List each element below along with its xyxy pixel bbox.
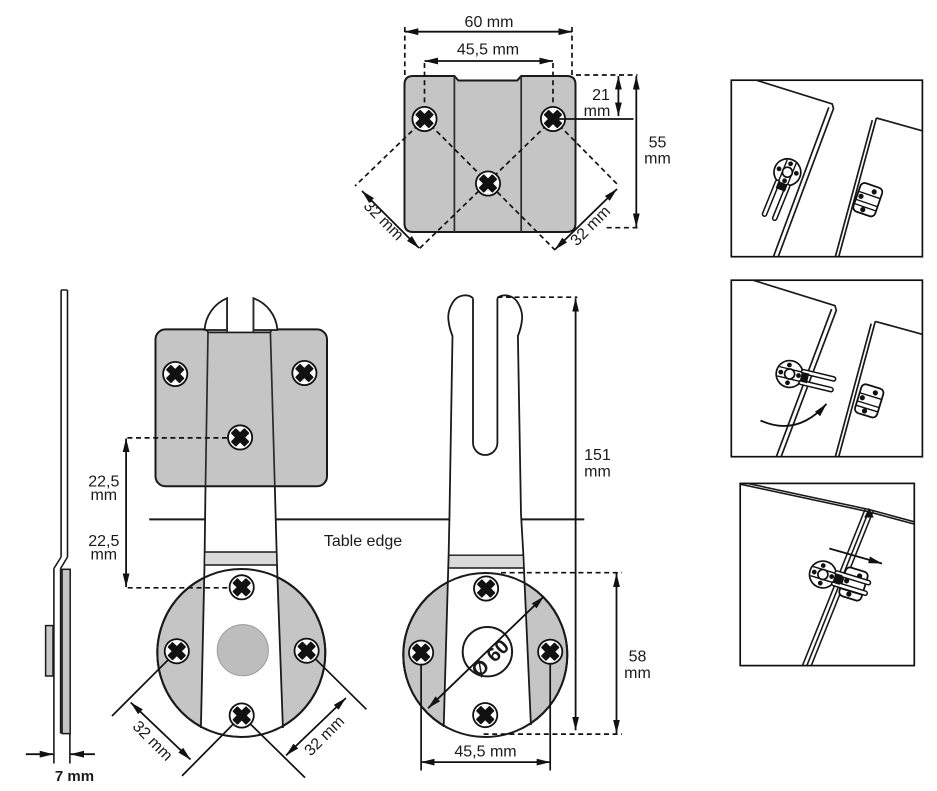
svg-text:151: 151 (584, 447, 611, 464)
svg-text:mm: mm (644, 151, 671, 168)
svg-text:45,5 mm: 45,5 mm (457, 42, 519, 59)
svg-text:32 mm: 32 mm (360, 198, 407, 245)
svg-text:32 mm: 32 mm (302, 713, 349, 760)
svg-text:45,5 mm: 45,5 mm (454, 744, 516, 761)
svg-text:mm: mm (584, 103, 611, 120)
svg-text:mm: mm (584, 464, 611, 481)
svg-text:55: 55 (649, 135, 667, 152)
svg-text:Table edge: Table edge (324, 533, 402, 550)
svg-text:mm: mm (90, 487, 117, 504)
svg-text:58: 58 (629, 649, 647, 666)
svg-text:mm: mm (90, 547, 117, 564)
svg-text:32 mm: 32 mm (129, 718, 176, 765)
svg-text:21: 21 (592, 87, 610, 104)
svg-text:60 mm: 60 mm (465, 14, 514, 31)
svg-text:7 mm: 7 mm (55, 768, 94, 785)
svg-text:mm: mm (624, 665, 651, 682)
